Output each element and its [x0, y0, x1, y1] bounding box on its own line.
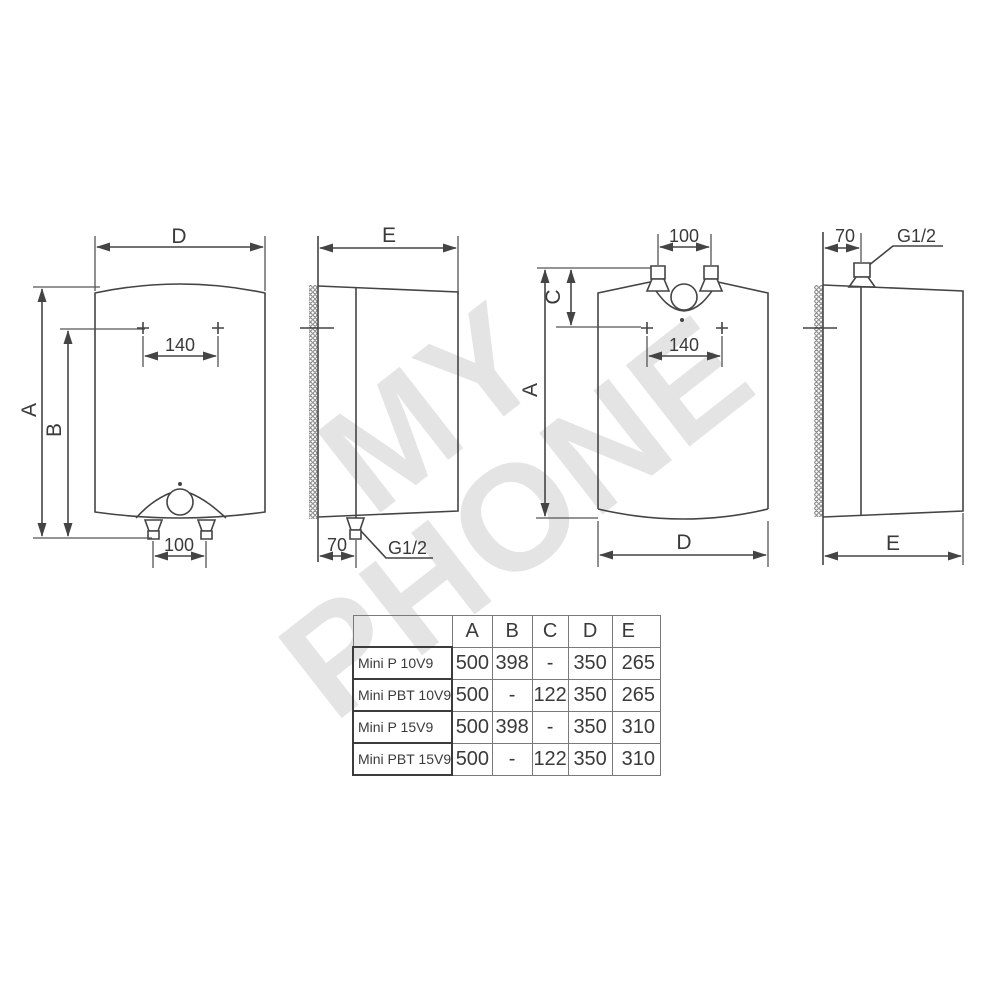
body-bottom-edge [598, 509, 768, 519]
mount-hole-cross-left [641, 322, 653, 334]
thread-size-label: G1/2 [388, 538, 427, 558]
thread-callout: G1/2 [361, 531, 433, 558]
thread-size-label: G1/2 [897, 226, 936, 246]
pipe-spacing-dimension-100: 100 [658, 226, 711, 265]
dim-label-pipes: 100 [164, 535, 194, 555]
value-E: 265 [612, 679, 660, 711]
col-header-A: A [452, 616, 492, 648]
value-E: 310 [612, 743, 660, 775]
dim-label-width: D [171, 225, 186, 248]
oversink-side-view: 70 G1/2 E [803, 226, 963, 565]
value-E: 265 [612, 647, 660, 679]
value-D: 350 [568, 711, 612, 743]
value-E: 310 [612, 711, 660, 743]
inner-height-dimension-B: B [43, 329, 145, 536]
dim-label-holes: 140 [669, 335, 699, 355]
pipe-fitting [350, 530, 361, 539]
pipe-offset-dimension-70: 70 [320, 535, 356, 568]
temperature-knob [167, 489, 193, 515]
technical-drawing-sheet: MYPHONE D [0, 0, 1000, 1000]
model-name: Mini PBT 15V9 [353, 743, 452, 775]
value-D: 350 [568, 743, 612, 775]
wall-hatching [309, 285, 318, 519]
value-C: - [532, 647, 568, 679]
table-corner-cell [353, 616, 452, 648]
value-B: 398 [492, 647, 532, 679]
body-right-edge [718, 282, 768, 509]
dim-label-offset: 70 [327, 535, 347, 555]
pipe-flare-right [700, 279, 722, 291]
mount-holes-dimension-140: 140 [641, 322, 728, 367]
value-C: 122 [532, 743, 568, 775]
width-dimension-D: D [598, 521, 768, 567]
table-row: Mini P 15V9 500 398 - 350 310 [353, 711, 660, 743]
dim-label-height: A [18, 403, 41, 417]
undersink-front-view: D A B [18, 225, 265, 568]
pipe-spacing-dimension-100: 100 [153, 535, 206, 568]
pipe-fitting [854, 263, 870, 277]
dim-label-height: A [519, 383, 542, 397]
pipe-offset-dimension-70: 70 [825, 226, 861, 262]
dim-label-inner-height: B [43, 423, 66, 437]
dim-label-width: D [676, 531, 691, 554]
col-header-E: E [612, 616, 660, 648]
depth-dimension-E: E [825, 513, 963, 565]
value-A: 500 [452, 711, 492, 743]
dimensions-table: A B C D E Mini P 10V9 500 398 - 350 265 … [352, 615, 661, 776]
depth-dimension-E: E [320, 224, 458, 294]
mount-hole-cross-left [137, 322, 149, 334]
indicator-dot [680, 318, 684, 322]
table-row: Mini PBT 10V9 500 - 122 350 265 [353, 679, 660, 711]
value-D: 350 [568, 647, 612, 679]
temperature-knob [671, 284, 697, 310]
pipe-flare-left [647, 279, 669, 291]
height-dimension-A: A [519, 270, 598, 518]
mount-hole-cross-right [716, 322, 728, 334]
height-dimension-A: A [18, 287, 152, 538]
dim-label-depth: E [886, 532, 900, 555]
dim-label-pipes: 100 [669, 226, 699, 246]
value-A: 500 [452, 743, 492, 775]
indicator-dot [178, 482, 182, 486]
col-header-D: D [568, 616, 612, 648]
value-D: 350 [568, 679, 612, 711]
body-left-edge [598, 282, 650, 509]
value-C: 122 [532, 679, 568, 711]
value-B: 398 [492, 711, 532, 743]
thread-callout: G1/2 [868, 226, 943, 266]
pipe-right [704, 266, 718, 279]
dimension-drawings: D A B [0, 0, 1000, 1000]
bottom-mount-arch [136, 482, 226, 539]
width-dimension-D: D [95, 225, 265, 291]
top-offset-dimension-C: C [542, 270, 641, 327]
heater-body-side [318, 286, 458, 517]
dim-label-depth: E [382, 224, 396, 247]
table-row: Mini PBT 15V9 500 - 122 350 310 [353, 743, 660, 775]
dim-label-holes: 140 [165, 335, 195, 355]
dim-label-offset: 70 [835, 226, 855, 246]
table-header-row: A B C D E [353, 616, 660, 648]
pipe-flare-right [198, 520, 215, 531]
value-A: 500 [452, 679, 492, 711]
value-A: 500 [452, 647, 492, 679]
mount-hole-cross-right [212, 322, 224, 334]
heater-body-side [823, 285, 963, 517]
mount-holes-dimension-140: 140 [137, 322, 224, 367]
leader-line [868, 246, 943, 266]
col-header-B: B [492, 616, 532, 648]
undersink-side-view: E 70 G1/2 [300, 224, 458, 568]
model-name: Mini P 10V9 [353, 647, 452, 679]
model-name: Mini PBT 10V9 [353, 679, 452, 711]
model-name: Mini P 15V9 [353, 711, 452, 743]
value-C: - [532, 711, 568, 743]
wall-hatching [814, 285, 823, 517]
value-B: - [492, 743, 532, 775]
col-header-C: C [532, 616, 568, 648]
table-row: Mini P 10V9 500 398 - 350 265 [353, 647, 660, 679]
pipe-left [651, 266, 665, 279]
pipe-flare-left [145, 520, 162, 531]
value-B: - [492, 679, 532, 711]
pipe-flare [347, 518, 364, 530]
oversink-front-view: 100 140 C [519, 226, 768, 567]
pipe-right [201, 531, 212, 539]
